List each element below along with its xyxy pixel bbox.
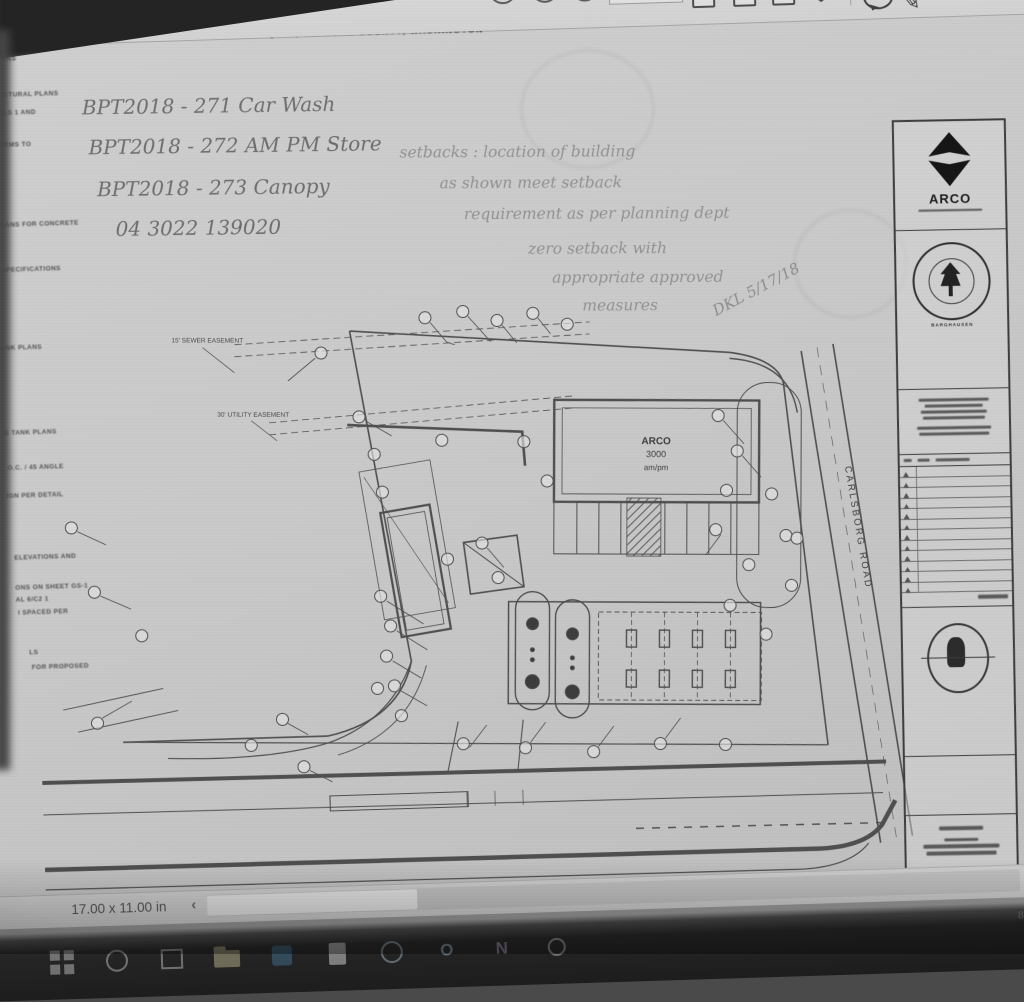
file-explorer-icon[interactable] [214, 944, 241, 971]
easement-label-1: 15' SEWER EASEMENT [171, 337, 243, 344]
scroll-left-arrow[interactable]: ‹ [191, 896, 197, 913]
start-button[interactable] [49, 949, 76, 976]
page-scrolling-mode-icon[interactable] [691, 0, 715, 8]
fuel-canopy [508, 592, 761, 719]
fit-one-page-icon[interactable] [732, 0, 756, 7]
photo-of-monitor: { "toolbar": { "zoom_value": "66.7%", "d… [0, 0, 1024, 954]
trash-enclosure [463, 535, 524, 594]
pdf-page[interactable]: SEQUIM, CLALLAM COUNTY, WASHINGTON AL PL… [0, 13, 1024, 897]
handwriting-line: as shown meet setback [440, 173, 622, 192]
photos-app-icon[interactable] [268, 942, 295, 969]
comment-icon[interactable] [863, 0, 894, 10]
revision-table [900, 453, 1013, 608]
monitor-screen: – + 66.7% ▾ ✎ Sign In SEQUIM, CLALLAM CO… [0, 0, 1024, 1002]
blank-box [905, 755, 1016, 816]
zoom-level-dropdown[interactable]: 66.7% ▾ [608, 0, 683, 5]
scrollbar-thumb[interactable] [207, 889, 418, 916]
fill-sign-pencil-icon[interactable]: ✎ [900, 0, 929, 15]
monitor-left-bezel [0, 30, 10, 770]
margin-note: PLANS FOR CONCRETE [0, 220, 79, 230]
toolbar-divider [849, 0, 851, 5]
zoom-out-icon[interactable]: – [530, 0, 559, 3]
outlook-icon[interactable]: O [433, 937, 460, 964]
car-wash-building [359, 460, 459, 640]
building-label-line: 3000 [646, 449, 666, 459]
margin-note: SPECIFICATIONS [1, 265, 61, 274]
rotate-view-icon[interactable] [488, 0, 517, 5]
building-label-line: am/pm [644, 463, 669, 472]
arco-logo-box: ARCO [894, 120, 1006, 231]
browser-icon[interactable] [378, 939, 405, 966]
handwriting-line: zero setback with [528, 239, 667, 258]
firm-name-text: BARGHAUSEN [897, 321, 1007, 328]
handwriting-line: BPT2018 - 271 Car Wash [82, 92, 336, 120]
carlsborg-road: CARLSBORG ROAD [801, 342, 913, 845]
building-label-line: ARCO [641, 436, 671, 447]
zoom-in-icon[interactable]: + [570, 0, 599, 2]
title-block: ARCO BARGHAUSEN [892, 118, 1020, 897]
search-icon[interactable] [104, 947, 131, 974]
arco-brand-text: ARCO [895, 190, 1005, 207]
road-label: CARLSBORG ROAD [842, 465, 874, 590]
handwriting-line: appropriate approved [552, 268, 723, 287]
site-parcel: 15' SEWER EASEMENT 30' UTILITY EASEMENT … [63, 320, 830, 773]
page-size-indicator: 17.00 x 11.00 in [71, 899, 167, 917]
keynote-callouts [59, 295, 810, 790]
fit-width-icon[interactable] [771, 0, 795, 6]
parking-stalls [554, 498, 759, 557]
task-view-icon[interactable] [159, 946, 186, 973]
handwriting-line: BPT2018 - 272 AM PM Store [88, 131, 381, 159]
handwriting-line: requirement as per planning dept [464, 204, 730, 223]
taskbar-clock: 8:14 PM [1018, 908, 1024, 922]
site-plan-drawing: 15' SEWER EASEMENT 30' UTILITY EASEMENT … [19, 280, 918, 897]
engineer-seal-box: BARGHAUSEN [896, 229, 1009, 390]
barghausen-seal-icon [912, 242, 991, 321]
pe-stamp-box [902, 606, 1015, 757]
handwriting-line: 04 3022 139020 [115, 215, 281, 241]
firm-address-box [898, 388, 1009, 455]
onenote-icon[interactable]: N [488, 935, 515, 962]
easement-label-2: 30' UTILITY EASEMENT [217, 412, 289, 419]
pinned-app-icon[interactable] [543, 934, 570, 961]
handwriting-line: BPT2018 - 273 Canopy [97, 174, 330, 201]
pe-stamp-icon [927, 623, 990, 694]
arco-diamond-logo-icon [926, 131, 973, 188]
